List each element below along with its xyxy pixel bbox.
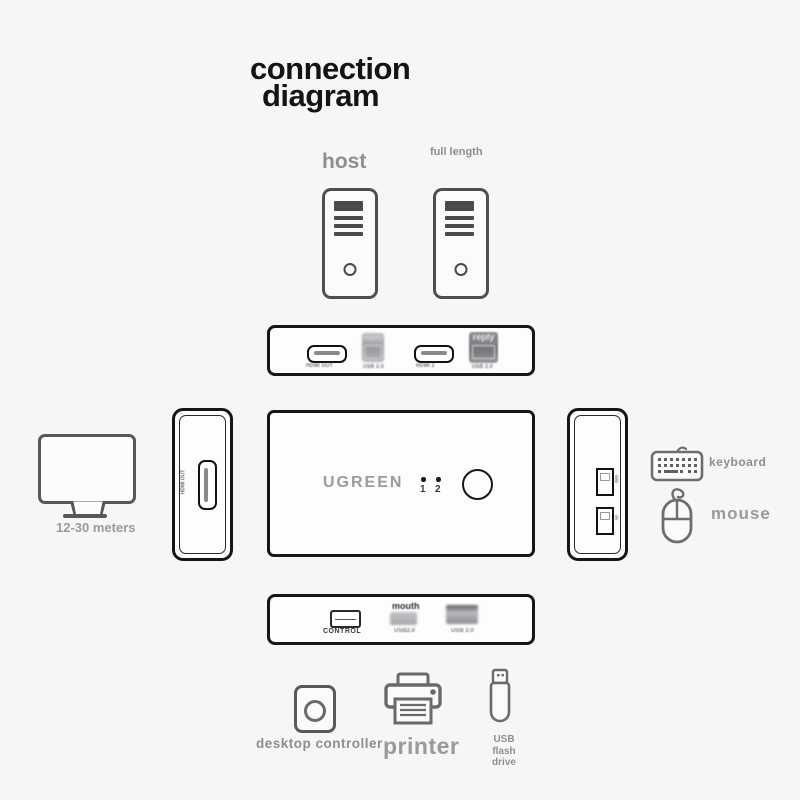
left-side-panel: HDMI OUT	[172, 408, 233, 561]
usb-flash-drive-icon	[485, 668, 515, 726]
usb-port-1-caption: mouth	[392, 601, 420, 611]
hdmi-out-port-label: HDMI OUT	[306, 363, 333, 369]
bottom-port-panel: CONTROL mouth USB2.0 USB 2.0	[267, 594, 535, 645]
desktop-controller-label: desktop controller	[256, 736, 383, 751]
host-tower-2-icon	[433, 188, 489, 299]
tower-power-button	[344, 263, 357, 276]
usb-2-0-port-2-label: USB 2.0	[451, 628, 474, 634]
brand-logo: UGREEN	[323, 474, 403, 492]
mouse-label: mouse	[711, 504, 771, 524]
monitor-base	[63, 514, 107, 518]
printer-label: printer	[383, 733, 459, 760]
keyboard-icon	[650, 443, 704, 483]
control-port-label: CONTROL	[323, 628, 361, 635]
tower-power-button	[455, 263, 468, 276]
monitor-label: 12-30 meters	[56, 520, 136, 535]
usb-a-port-1-icon	[596, 468, 614, 496]
usb-2-0-port-2-icon	[446, 605, 478, 624]
full-length-label: full length	[430, 146, 483, 158]
keyboard-label: keyboard	[709, 455, 766, 469]
page-title: connection diagram	[250, 54, 410, 111]
usb-a-port-2-icon	[596, 507, 614, 535]
tower-drive-bay	[445, 201, 474, 211]
top-port-panel: HDMI OUT reply USB 2.0 HDMI 2 reply USB …	[267, 325, 535, 376]
usb-2-0-port-1-icon	[390, 612, 417, 625]
switch-select-button	[462, 469, 493, 500]
hdmi-out-vertical-label: HDMI OUT	[180, 470, 186, 495]
led-indicator-2	[436, 477, 441, 482]
hdmi-2-port-label: HDMI 2	[416, 363, 435, 369]
desktop-controller-icon	[294, 685, 336, 733]
tower-drive-bay	[334, 201, 363, 211]
ugreen-switch-device: UGREEN 1 2	[267, 410, 535, 557]
usb-port-1-mark	[615, 475, 618, 483]
usb-b-port-1-icon: reply	[362, 333, 384, 362]
usb-flash-drive-label: USB flash drive	[482, 734, 526, 769]
mouse-icon	[657, 486, 697, 544]
printer-icon	[382, 671, 444, 731]
control-port-icon	[330, 610, 361, 628]
usb-port-2-mark	[615, 515, 618, 520]
usb-b-port-2-icon: reply	[469, 332, 498, 363]
hdmi-2-port-icon	[414, 345, 454, 363]
usb-b-port-2-label: USB 2.0	[472, 364, 493, 370]
led-label-1: 1	[420, 484, 426, 495]
led-label-2: 2	[435, 484, 441, 495]
led-indicator-1	[421, 477, 426, 482]
host-tower-1-icon	[322, 188, 378, 299]
usb-b-port-1-label: USB 2.0	[363, 364, 384, 370]
monitor-icon	[38, 434, 136, 504]
hdmi-out-port-icon	[307, 345, 347, 363]
right-side-panel	[567, 408, 628, 561]
usb-2-0-port-1-label: USB2.0	[394, 628, 415, 634]
hdmi-out-vertical-port-icon	[198, 460, 217, 510]
host-label: host	[322, 150, 366, 174]
monitor-stand	[70, 502, 106, 515]
